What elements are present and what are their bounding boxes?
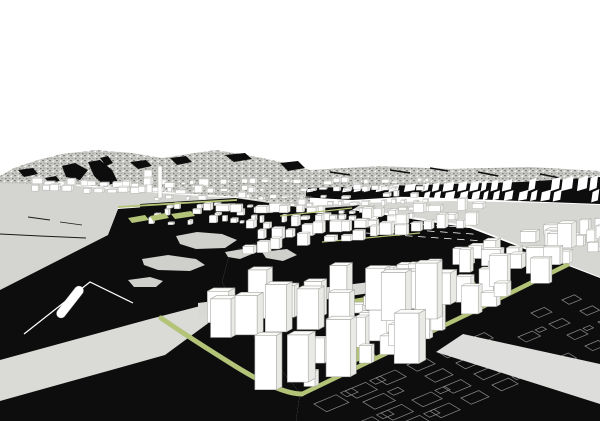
building-front [203,204,210,211]
building-side [437,260,442,319]
building-front [297,289,319,330]
building-front [220,189,227,191]
building-front [380,223,391,235]
building-front [83,188,89,193]
building-side [38,185,39,192]
building-front [291,216,298,226]
building-side [169,208,171,215]
building-front [242,186,248,190]
building-front [168,222,173,224]
building-side [376,224,379,236]
building-front [50,184,58,190]
building-front [494,283,507,296]
building-front [260,216,263,223]
building-side [257,292,263,334]
building-front [457,199,465,211]
building-side [413,213,414,218]
building-side [264,229,266,239]
building-front [362,187,368,191]
building-side [398,190,399,196]
building-front [392,181,397,183]
building-front [342,177,348,182]
building-front [287,335,308,382]
building-front [301,217,308,220]
building-side [277,332,282,389]
building-front [456,220,463,228]
building-front [286,230,293,238]
building-front [193,209,201,214]
building-side [174,182,175,188]
building-front [258,230,264,239]
building-top [489,254,510,256]
building-front [270,238,279,249]
urban-massing-render [0,0,600,421]
building-front [249,179,255,184]
building-front [248,187,253,192]
building-front [233,182,236,184]
building-side [42,177,44,183]
building-front [344,188,351,190]
building-top [520,229,539,231]
building-front [342,221,350,231]
building-front [261,179,268,182]
building-front [399,207,407,210]
building-top [329,290,355,293]
building-side [305,198,307,205]
building-front [370,226,376,236]
building-front [396,215,406,224]
building-front [409,214,413,219]
building-front [283,180,288,183]
building-front [362,208,371,218]
building-side [322,220,325,233]
building-side [308,331,315,382]
building-front [339,211,343,214]
building-front [181,182,185,184]
building-front [138,186,145,192]
building-front [175,190,185,194]
building-top [415,260,442,263]
building-front [211,299,231,338]
building-front [255,335,277,389]
building-front [341,196,349,198]
building-top [481,247,504,249]
building-front [194,186,202,193]
building-top [326,316,356,319]
building-front [230,205,241,212]
building-front [437,215,445,228]
building-front [558,223,572,247]
building-side [308,232,310,245]
building-front [310,189,315,191]
building-front [361,201,368,205]
building-front [188,220,191,224]
building-front [166,195,172,198]
building-front [465,213,476,225]
building-front [395,225,407,235]
building-front [230,219,236,223]
building-front [235,296,257,335]
building-front [307,203,312,206]
building-front [588,243,598,252]
building-front [531,258,549,283]
building-front [243,246,254,253]
building-front [510,254,522,268]
building-side [450,270,456,305]
building-side [470,248,473,273]
building-front [107,190,116,193]
building-front [32,178,42,184]
building-front [371,186,378,190]
building-top [456,274,474,276]
building-side [407,224,409,235]
building-side [350,316,356,377]
building-front [459,249,470,272]
building-front [391,187,395,189]
building-front [118,187,128,192]
building-front [350,203,358,205]
building-side [371,344,374,363]
building-front [279,206,287,213]
building-front [246,195,249,198]
building-side [200,208,201,214]
building-top [465,212,479,213]
building-front [327,202,332,205]
building-front [100,183,108,186]
building-front [429,206,441,212]
building-front [256,206,267,213]
building-side [549,256,552,283]
building-side [75,178,76,185]
building-front [354,220,366,228]
building-side [282,227,285,240]
building-front [190,181,194,184]
building-top [413,202,426,203]
building-front [263,223,269,228]
building-side [420,221,422,231]
building-top [472,202,485,204]
building-top [429,204,444,205]
building-front [341,236,350,242]
building-top [341,234,353,235]
building-front [333,178,339,182]
building-front [324,181,332,184]
building-side [202,185,203,193]
building-top [461,284,482,286]
building-front [417,178,421,181]
building-front [144,178,151,185]
building-front [401,200,404,203]
building-front [88,181,96,185]
building-front [413,203,423,212]
building-front [461,286,478,314]
building-side [241,204,243,212]
building-front [394,191,398,196]
building-front [240,221,243,223]
building-front [238,192,245,197]
building-front [359,346,371,363]
building-front [319,187,326,189]
building-front [94,189,102,193]
building-side [572,221,577,248]
building-side [521,252,525,269]
building-front [324,236,334,241]
building-side [570,249,573,263]
building-front [353,184,361,189]
building-front [394,313,419,363]
building-front [382,201,385,206]
building-side [419,310,426,364]
building-side [319,286,324,330]
building-front [425,179,428,182]
building-side [465,197,468,210]
building-front [333,187,339,191]
building-side [279,237,282,249]
building-front [338,215,344,219]
building-front [197,205,201,209]
building-side [391,221,394,235]
building-side [244,208,245,215]
building-side [507,281,511,297]
building-front [326,319,350,376]
building-side [350,220,352,231]
building-front [299,196,303,198]
building-front [472,203,483,208]
building-front [209,216,216,223]
building-side [445,213,448,228]
building-front [43,185,50,190]
building-front [383,193,389,196]
building-front [216,205,229,211]
building-front [330,221,342,232]
building-front [520,231,536,242]
building-front [220,180,226,184]
building-front [293,180,301,183]
building-top [411,221,422,222]
building-side [476,212,479,226]
building-front [424,221,431,229]
building-side [298,215,301,226]
building-front [373,209,381,217]
building-front [186,197,189,200]
building-front [167,188,171,192]
building-front [265,285,286,332]
building-front [364,180,368,184]
spire-landmark [158,166,162,198]
building-front [313,222,322,233]
building-top [381,269,411,272]
building-side [560,245,563,264]
building-front [338,201,341,205]
building-front [62,186,71,191]
building-side [406,213,409,224]
building-front [411,223,420,231]
building-front [297,233,308,245]
building-front [416,187,423,191]
building-side [424,202,427,212]
building-front [167,206,172,208]
building-side [287,282,293,332]
building-front [587,230,595,242]
building-front [298,199,305,205]
building-top [216,204,231,205]
building-side [263,215,264,222]
building-front [260,189,263,191]
building-side [583,235,585,246]
building-front [270,195,277,199]
building-top [297,286,324,289]
massing-model-canvas [0,0,600,421]
building-top [255,332,282,335]
building-side [363,229,365,240]
building-front [391,199,395,203]
building-front [246,221,253,228]
building-front [382,180,389,183]
building-front [247,205,251,207]
building-side [216,215,218,223]
building-front [300,189,306,192]
building-front [410,193,417,197]
building-front [282,196,288,198]
building-front [198,196,206,200]
building-front [242,179,248,183]
building-side [303,205,305,213]
building-front [207,189,213,193]
building-front [349,211,354,213]
building-front [321,196,326,198]
building-front [296,206,302,213]
building-top [366,266,390,269]
building-front [258,197,263,200]
building-front [222,216,226,222]
building-front [353,231,364,241]
building-front [381,187,388,190]
building-front [32,185,38,191]
building-front [165,183,174,188]
building-front [257,242,268,253]
